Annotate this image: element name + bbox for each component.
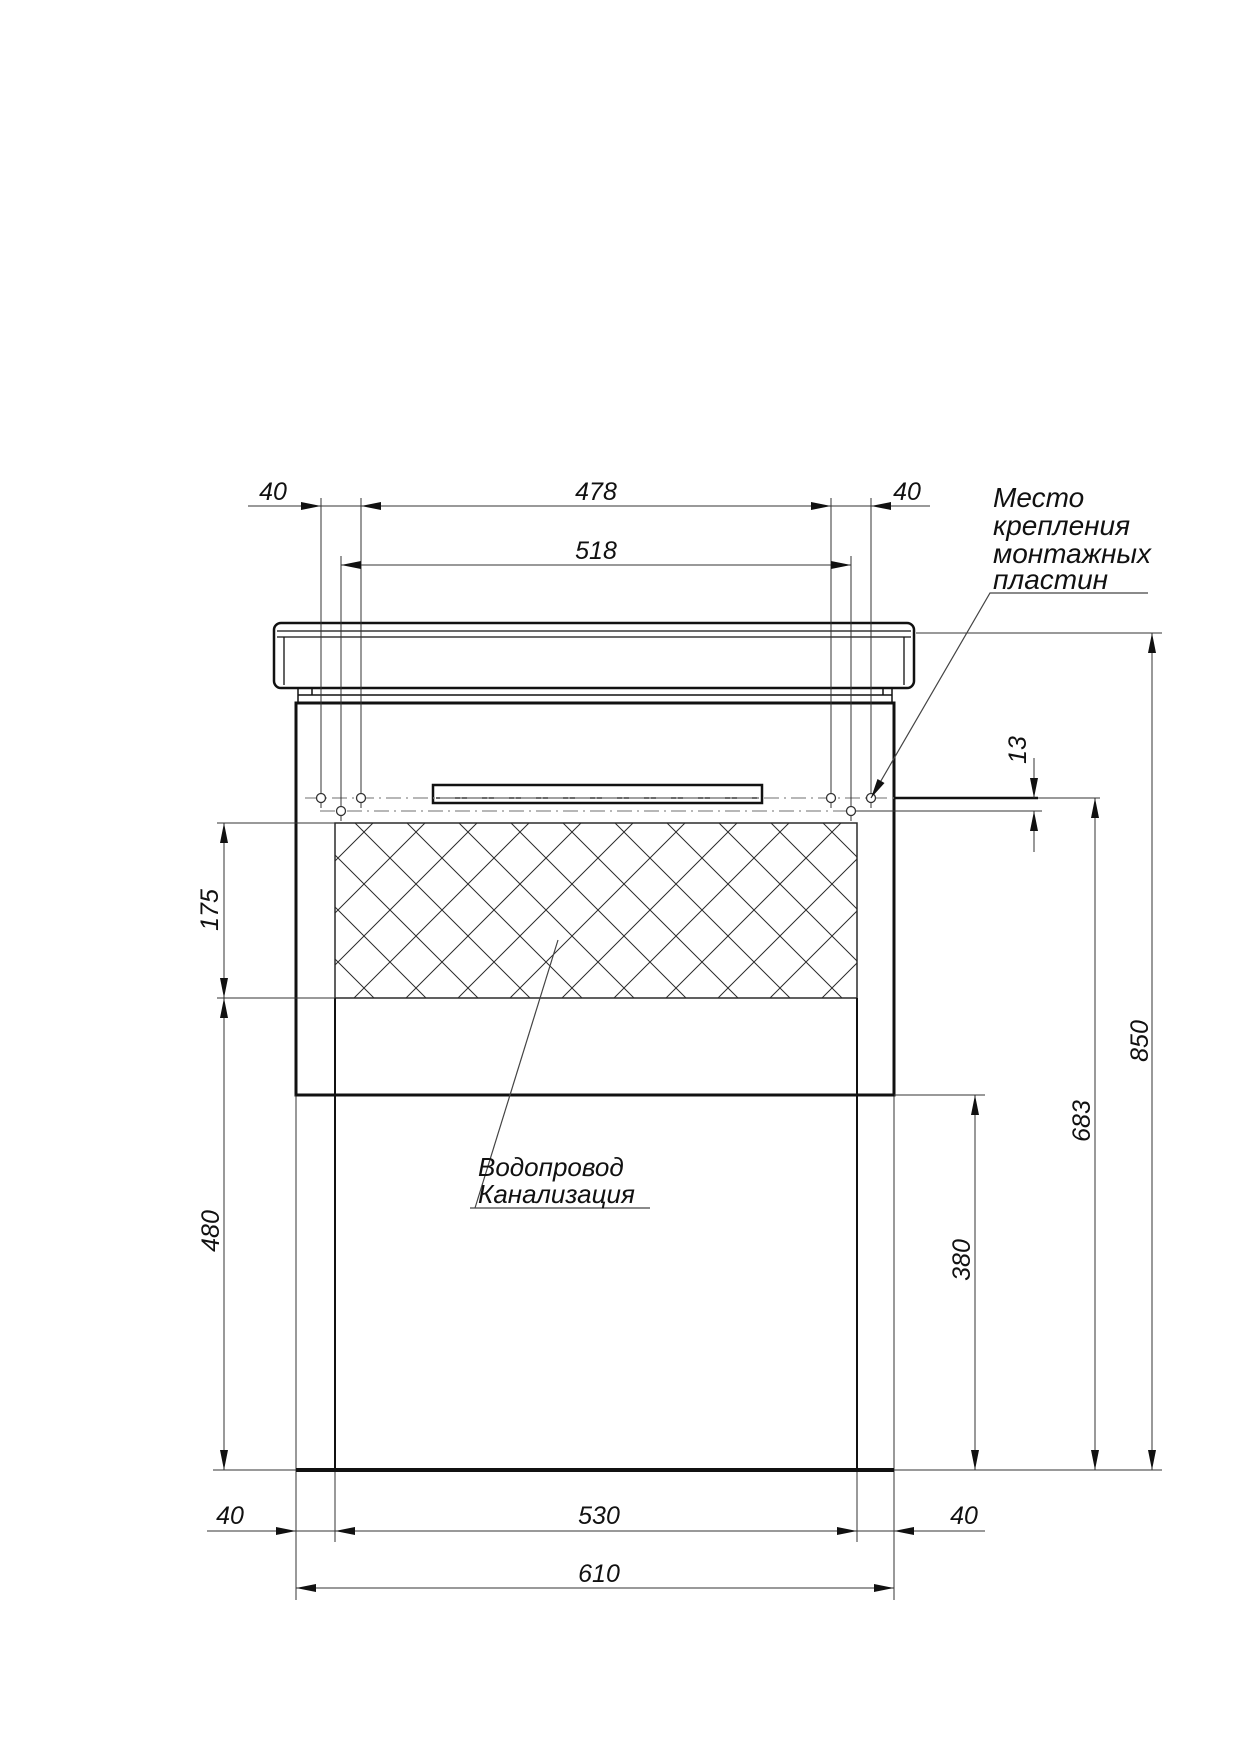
wall-recess-hatch	[335, 823, 857, 998]
mounting-hole	[317, 788, 326, 808]
callout-mounting-line4: пластин	[993, 564, 1108, 595]
countertop	[274, 623, 914, 688]
dim-bottom-right-offset: 40	[950, 1502, 978, 1530]
dim-hole-span-478: 478	[575, 478, 617, 506]
callout-plumbing-line1: Водопровод	[478, 1152, 624, 1182]
lower-compartment	[335, 998, 857, 1470]
mounting-hole	[337, 801, 346, 821]
dim-row-gap-13: 13	[1004, 736, 1032, 764]
callout-plumbing-line2: Канализация	[478, 1179, 635, 1209]
leader-arrowhead	[871, 779, 885, 798]
callout-mounting-line2: крепления	[993, 510, 1130, 541]
service-recess	[335, 823, 857, 998]
dimension-texts: 40 478 518 40 13 175 480 380 683 850 40 …	[196, 478, 1154, 1588]
dim-recess-height-175: 175	[196, 889, 224, 931]
dim-hole-span-518: 518	[575, 537, 617, 565]
countertop-apron	[298, 688, 892, 703]
mounting-holes	[317, 788, 876, 821]
mounting-plate-leader	[871, 593, 1148, 798]
dim-left-height-480: 480	[197, 1210, 225, 1252]
dimension-lines	[207, 506, 1152, 1588]
extension-lines	[213, 498, 1162, 1600]
callout-mounting-plates: Место крепления монтажных пластин	[993, 482, 1152, 595]
dimension-arrowheads	[220, 502, 1156, 1592]
technical-drawing: 40 478 518 40 13 175 480 380 683 850 40 …	[0, 0, 1241, 1754]
mounting-hole	[357, 788, 366, 808]
dim-top-left-offset: 40	[259, 478, 287, 506]
callout-plumbing: Водопровод Канализация	[478, 1152, 635, 1209]
callout-mounting-line1: Место	[993, 482, 1084, 513]
washbasin-top	[274, 623, 914, 688]
dim-plate-height-683: 683	[1068, 1100, 1096, 1142]
dim-bottom-left-offset: 40	[216, 1502, 244, 1530]
mounting-hole	[827, 788, 836, 808]
mounting-centerlines	[305, 798, 1100, 811]
dim-lower-height-380: 380	[948, 1239, 976, 1281]
dim-top-right-offset: 40	[893, 478, 921, 506]
dim-total-width-610: 610	[578, 1560, 620, 1588]
drawing-page: 40 478 518 40 13 175 480 380 683 850 40 …	[0, 0, 1241, 1754]
dim-bottom-span-530: 530	[578, 1502, 620, 1530]
dim-total-height-850: 850	[1126, 1020, 1154, 1062]
mounting-hole	[847, 801, 856, 821]
drawer-handle	[433, 785, 762, 803]
